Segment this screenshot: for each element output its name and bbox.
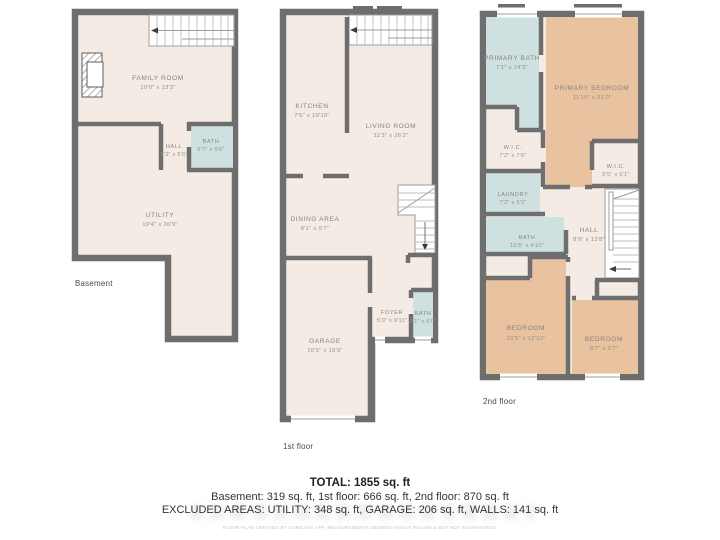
room-dims: 8'1" x 9'7" — [301, 226, 330, 232]
floor-areas-line: Basement: 319 sq. ft, 1st floor: 666 sq.… — [0, 491, 720, 505]
room-label: DINING AREA — [290, 216, 339, 223]
room-dims: 11'3" x 26'2" — [373, 133, 408, 139]
first-floor-plan: KITCHEN 7'6" x 19'10" LIVING ROOM 11'3" … — [283, 6, 437, 451]
room-dims: 8'9" x 13'8" — [573, 237, 605, 243]
first-floor-upper-staircase — [349, 15, 432, 45]
room-label: LIVING ROOM — [366, 123, 417, 130]
room-dims: 7'6" x 19'10" — [294, 113, 330, 119]
floor-label-first: 1st floor — [283, 442, 313, 451]
room-label: W.I.C. — [607, 164, 626, 170]
room-dims: 5'3" x 5'6" — [160, 152, 187, 158]
floor-plan-page: FAMILY ROOM 19'0" x 13'3" HALL 5'3" x 5'… — [0, 0, 720, 540]
floor-label-basement: Basement — [75, 279, 113, 288]
room-dims: 5'7" x 5'6" — [197, 147, 224, 153]
room-label: HALL — [580, 227, 599, 234]
second-floor-plan: PRIMARY BATH 7'1" x 14'3" PRIMARY BEDROO… — [483, 4, 641, 406]
room-label: KITCHEN — [295, 103, 328, 110]
room-label: BATH — [203, 139, 220, 145]
room-label: LAUNDRY — [498, 192, 529, 198]
room-label: BATH — [415, 311, 432, 317]
room-dims: 5'0" x 9'11" — [377, 318, 407, 324]
basement-staircase — [149, 15, 234, 46]
room-dims: 11'10" x 21'0" — [573, 95, 612, 101]
room-dims: 7'2" x 7'6" — [499, 153, 526, 159]
second-floor-staircase — [605, 189, 639, 278]
total-area-line: TOTAL: 1855 sq. ft — [0, 477, 720, 491]
room-label: UTILITY — [146, 212, 175, 219]
fine-print: FLOOR PLAN CREATED BY CUBICASA APP. MEAS… — [0, 521, 720, 535]
area-summary: TOTAL: 1855 sq. ft Basement: 319 sq. ft,… — [0, 477, 720, 534]
room-label: HALL — [166, 144, 182, 150]
lintel-mark — [574, 4, 622, 8]
room-label: GARAGE — [309, 338, 341, 345]
room-dims: 10'5" x 4'10" — [510, 243, 544, 249]
lintel-mark — [353, 6, 373, 10]
room-dims: 19'4" x 26'9" — [142, 222, 178, 228]
room-label: BEDROOM — [585, 336, 623, 343]
room-dims: 7'1" x 14'3" — [496, 65, 528, 71]
room-dims: 10'5" x 19'9" — [307, 348, 343, 354]
room-dims: 19'0" x 13'3" — [140, 85, 176, 91]
room-label: FOYER — [381, 310, 403, 316]
room-dims: 8'7" x 9'7" — [590, 346, 619, 352]
floor-plan-drawing: FAMILY ROOM 19'0" x 13'3" HALL 5'3" x 5'… — [0, 0, 720, 540]
room-label: PRIMARY BEDROOM — [555, 85, 630, 92]
room-label: W.I.C. — [504, 145, 523, 151]
lintel-mark — [498, 4, 525, 8]
room-dims: 5'5" x 5'1" — [602, 172, 629, 178]
fireplace-icon — [82, 53, 103, 97]
excluded-areas-line: EXCLUDED AREAS: UTILITY: 348 sq. ft, GAR… — [0, 504, 720, 518]
basement-plan: FAMILY ROOM 19'0" x 13'3" HALL 5'3" x 5'… — [75, 12, 235, 339]
lintel-mark — [377, 6, 402, 10]
room-label: PRIMARY BATH — [484, 55, 540, 62]
room-dims: 3'1" x 6'0" — [409, 319, 436, 325]
room-dims: 10'5" x 12'10" — [506, 336, 545, 342]
room-label: BATH — [519, 235, 536, 241]
room-dims: 7'2" x 5'2" — [499, 200, 526, 206]
room-label: FAMILY ROOM — [132, 75, 184, 82]
room-label: BEDROOM — [507, 325, 545, 332]
floor-label-second: 2nd floor — [483, 397, 516, 406]
